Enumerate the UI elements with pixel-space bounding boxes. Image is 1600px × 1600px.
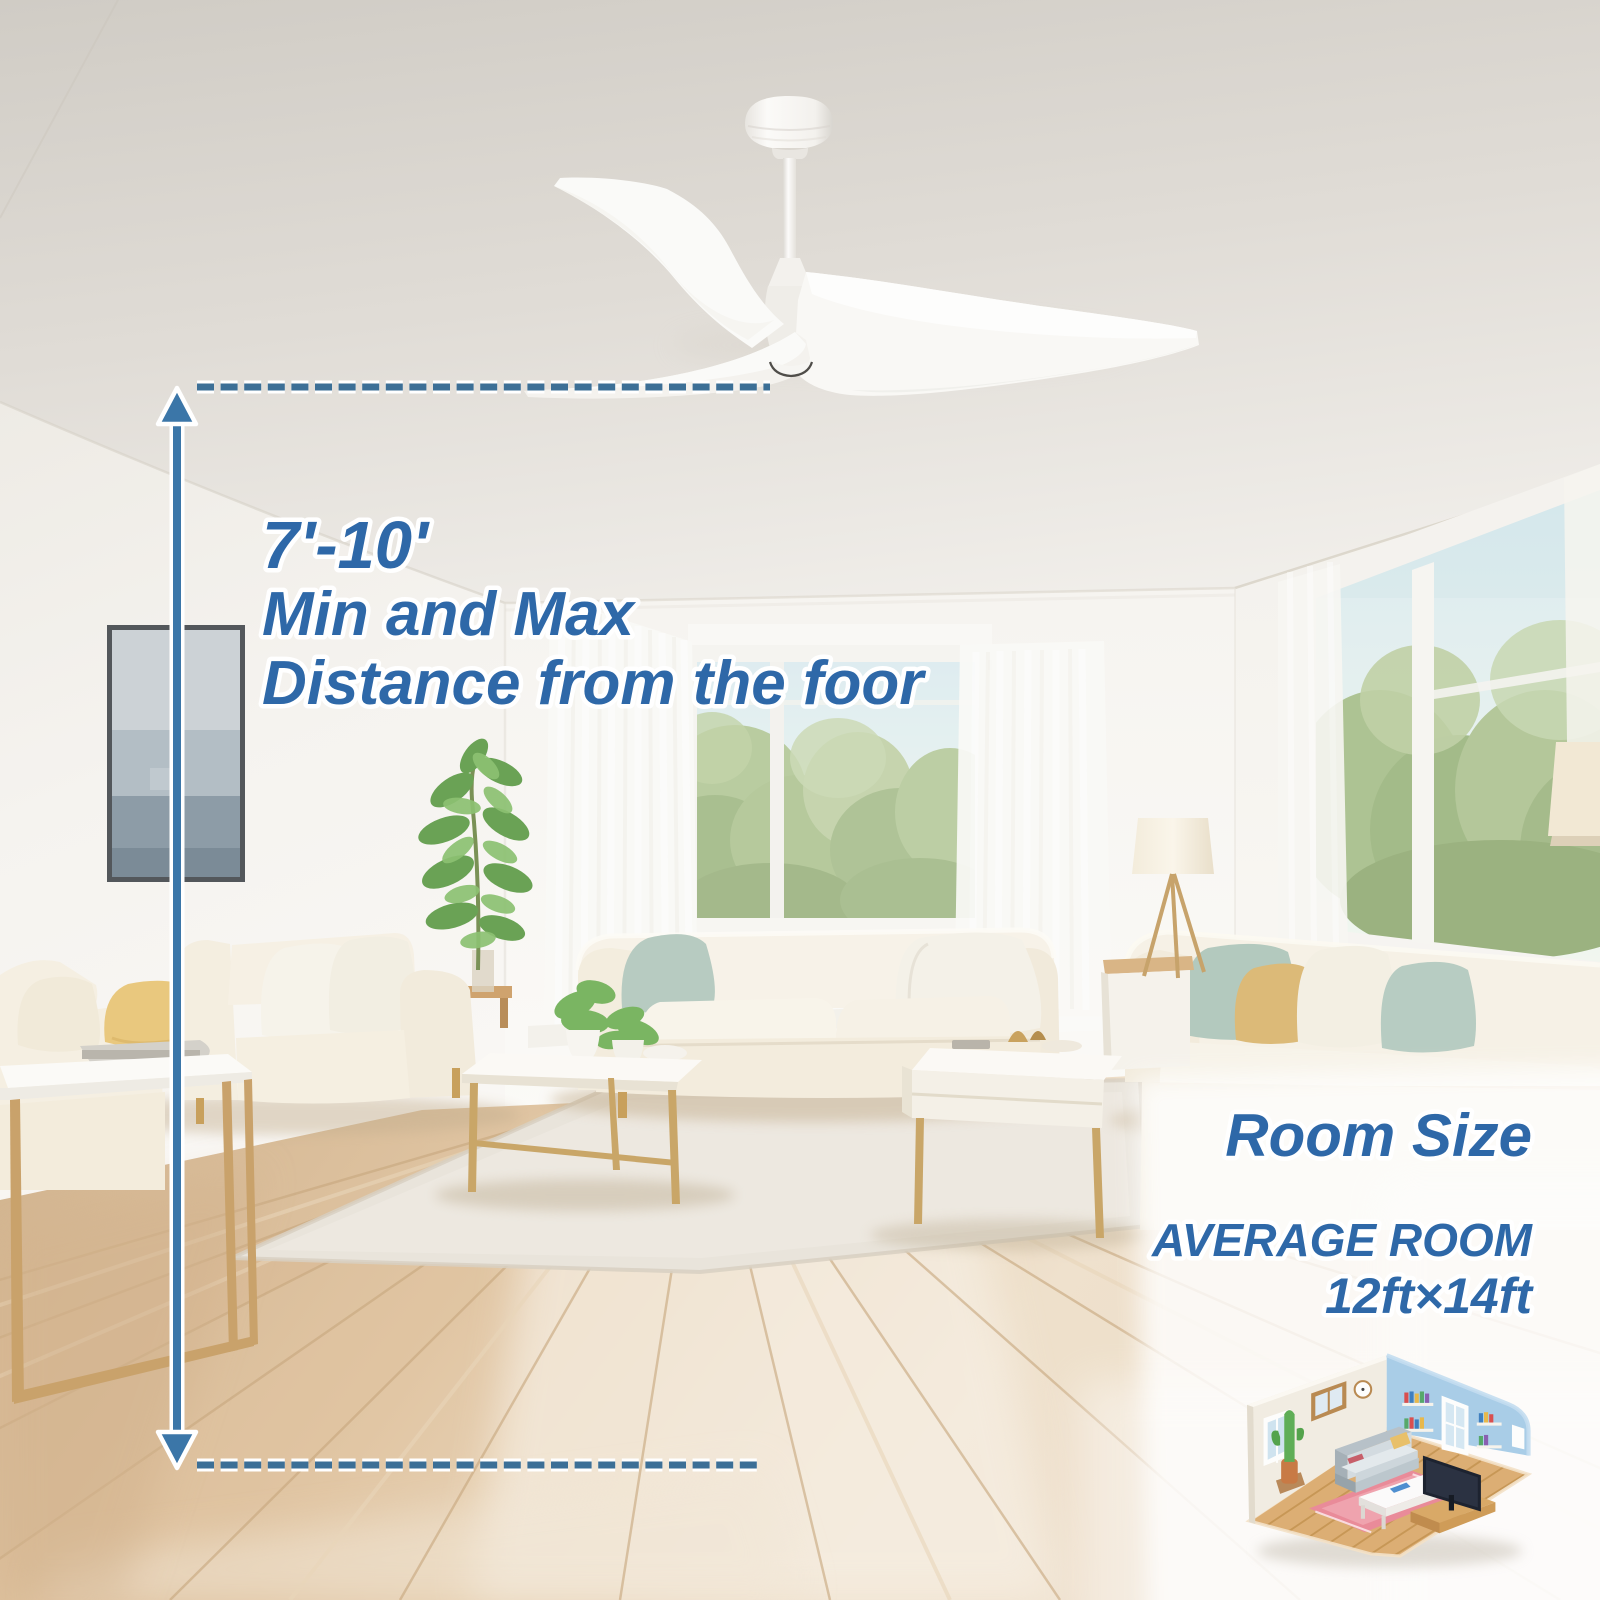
svg-text:AVERAGE ROOM: AVERAGE ROOM bbox=[1151, 1214, 1534, 1266]
svg-text:Room Size: Room Size bbox=[1225, 1102, 1532, 1169]
svg-text:Distance from the foor: Distance from the foor bbox=[262, 649, 926, 718]
svg-text:12ft×14ft: 12ft×14ft bbox=[1325, 1268, 1534, 1324]
svg-text:Min and Max: Min and Max bbox=[262, 580, 637, 649]
svg-text:7'-10': 7'-10' bbox=[262, 508, 430, 583]
